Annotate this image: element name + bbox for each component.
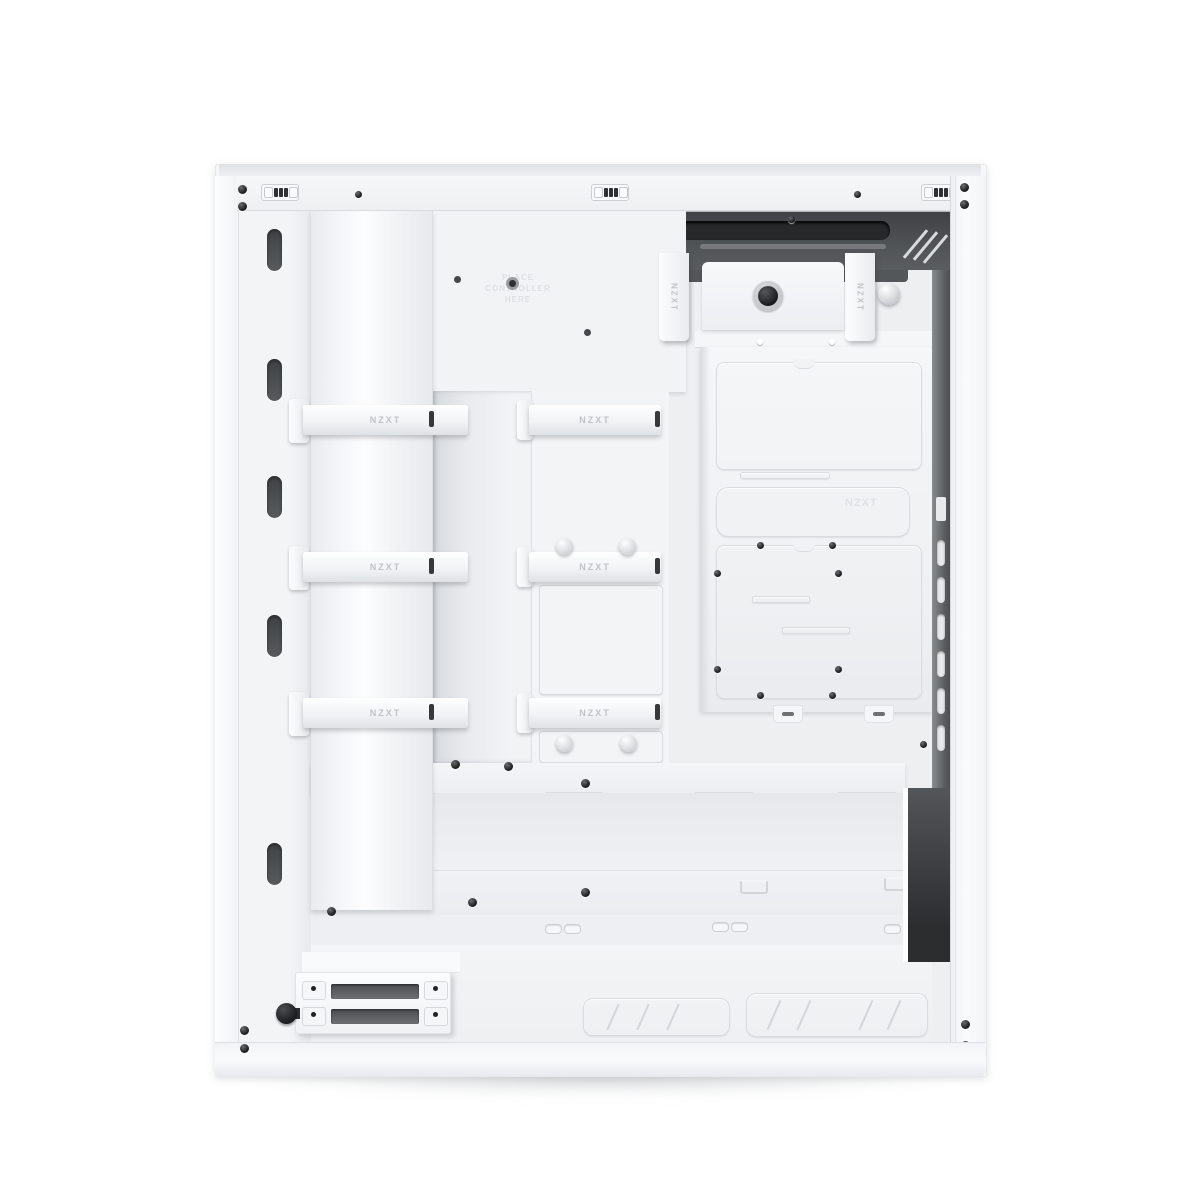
floor-rib bbox=[859, 1000, 874, 1030]
opening-bright-edge bbox=[903, 788, 908, 962]
plate-screw bbox=[714, 570, 721, 577]
right-outer-rail bbox=[950, 176, 986, 1042]
oval-vent bbox=[712, 922, 729, 932]
channel-ledge-right bbox=[700, 244, 886, 249]
channel-vent-stripe bbox=[923, 234, 948, 264]
shelf-screw bbox=[504, 762, 513, 771]
strap-slot bbox=[655, 558, 660, 574]
shelf-screw bbox=[581, 779, 590, 788]
plate-hook-tab bbox=[773, 705, 803, 723]
shelf-screw bbox=[451, 760, 460, 769]
hook-tab-slot bbox=[782, 712, 794, 716]
cable-strap: NZXT bbox=[529, 405, 661, 435]
floor-rib bbox=[666, 1004, 679, 1030]
drive-tray-outline bbox=[716, 362, 922, 470]
strap-slot bbox=[429, 704, 434, 720]
pill-recess bbox=[716, 487, 910, 537]
cage-slot bbox=[331, 984, 419, 999]
vent-slot bbox=[614, 188, 618, 197]
rear-screw bbox=[920, 741, 927, 748]
vent-slot bbox=[609, 188, 613, 197]
plate-screw bbox=[835, 666, 842, 673]
top-vent-group bbox=[591, 184, 629, 201]
strap-slot bbox=[655, 704, 660, 720]
oval-vent bbox=[731, 922, 748, 932]
floor-rib bbox=[767, 1000, 782, 1030]
vent-slot bbox=[939, 188, 943, 197]
hanging-cable-strap: NZXT bbox=[659, 253, 689, 341]
vent-end-cap bbox=[924, 187, 933, 198]
plate-hole bbox=[454, 276, 461, 283]
vent-slot bbox=[604, 188, 608, 197]
vent-end-cap bbox=[594, 187, 603, 198]
controller-emboss-text: PLACE CONTROLLER HERE bbox=[448, 272, 588, 305]
front-frame-cutout bbox=[267, 843, 282, 885]
plate-screw bbox=[829, 692, 836, 699]
cage-slot bbox=[331, 1009, 419, 1024]
cable-strap: NZXT bbox=[303, 405, 468, 435]
front-frame-cutout bbox=[267, 615, 282, 657]
corner-screw bbox=[240, 1026, 249, 1035]
rear-vent-slot bbox=[937, 540, 945, 566]
cage-screw-tab bbox=[424, 1007, 448, 1026]
shelf-screw bbox=[581, 888, 590, 897]
top-vent-group bbox=[261, 184, 299, 201]
rail-seam-line bbox=[955, 176, 956, 1042]
product-photo: PLACE CONTROLLER HERE NZXT bbox=[0, 0, 1200, 1200]
dash-emboss bbox=[752, 596, 810, 603]
corner-screw bbox=[238, 185, 247, 194]
plate-screw bbox=[757, 542, 764, 549]
dash-emboss bbox=[782, 627, 850, 634]
plate-screw bbox=[714, 666, 721, 673]
vent-end-cap bbox=[264, 187, 273, 198]
shelf-screw bbox=[468, 898, 477, 907]
standoff-bump bbox=[556, 538, 573, 555]
top-bar-screw bbox=[355, 191, 362, 198]
vent-end-cap bbox=[619, 187, 628, 198]
drive-cage-top bbox=[302, 952, 460, 973]
cage-tab-hole bbox=[311, 986, 316, 991]
plate-hole bbox=[584, 329, 591, 336]
bottom-frame bbox=[215, 1042, 985, 1076]
strap-slot bbox=[429, 558, 434, 574]
cage-screw-tab bbox=[302, 1007, 326, 1026]
plate-grommet-hole-center bbox=[509, 280, 516, 287]
cable-strap: NZXT bbox=[303, 698, 468, 728]
strap-brand-label: NZXT bbox=[579, 415, 611, 425]
cable-strap: NZXT bbox=[529, 552, 661, 582]
floor-rib bbox=[887, 1000, 902, 1030]
oval-vent bbox=[564, 924, 581, 934]
mid-column-frame bbox=[539, 585, 663, 695]
step-screw-hole bbox=[829, 339, 835, 345]
cable-strap: NZXT bbox=[529, 698, 661, 728]
plate-screw bbox=[829, 542, 836, 549]
cage-screw-tab bbox=[302, 981, 326, 1000]
strap-slot bbox=[655, 411, 660, 427]
drive-tray-outline bbox=[716, 545, 922, 699]
strap-brand-label: NZXT bbox=[370, 562, 402, 572]
strap-brand-label: NZXT bbox=[579, 708, 611, 718]
vent-slot bbox=[279, 188, 283, 197]
plate-screw bbox=[757, 692, 764, 699]
rear-vent-slot bbox=[937, 725, 945, 751]
hook-tab-slot bbox=[873, 712, 885, 716]
thumbscrew-knob bbox=[276, 1003, 297, 1024]
strap-brand-label: NZXT bbox=[670, 283, 679, 312]
standoff-bump bbox=[556, 735, 573, 752]
corner-screw bbox=[960, 200, 969, 209]
vent-strip bbox=[311, 915, 932, 945]
drive-cage bbox=[295, 972, 451, 1034]
corner-screw bbox=[960, 183, 969, 192]
bar-screw bbox=[327, 907, 336, 916]
corner-screw bbox=[240, 1044, 249, 1053]
bracket-grommet bbox=[753, 281, 783, 311]
tray-step bbox=[695, 331, 937, 348]
corner-screw bbox=[238, 202, 247, 211]
thumb-stud bbox=[878, 283, 900, 305]
plate-fold-edge bbox=[700, 347, 710, 712]
floor-rib bbox=[606, 1004, 619, 1030]
floor-rib bbox=[636, 1004, 649, 1030]
floor-rib bbox=[797, 1000, 812, 1030]
front-frame-cutout bbox=[267, 476, 282, 518]
standoff-bump bbox=[619, 538, 636, 555]
shelf-hook-cutout bbox=[740, 880, 768, 894]
rear-hook-cutout bbox=[936, 497, 946, 521]
front-frame-cutout bbox=[267, 359, 282, 401]
left-outer-wall bbox=[215, 176, 239, 1042]
cage-screw-tab bbox=[424, 981, 448, 1000]
rear-vent-slot bbox=[937, 651, 945, 677]
strap-brand-label: NZXT bbox=[579, 562, 611, 572]
rear-psu-opening bbox=[903, 788, 951, 962]
channel-screw bbox=[788, 216, 795, 223]
drive-mount-plate: NZXT bbox=[700, 347, 932, 712]
oval-vent bbox=[884, 924, 901, 934]
floor-vent-tray bbox=[583, 998, 730, 1036]
hanging-cable-strap: NZXT bbox=[845, 253, 875, 341]
plate-screw bbox=[835, 570, 842, 577]
strap-slot bbox=[429, 411, 434, 427]
rear-vent-slot bbox=[937, 688, 945, 714]
floor-vent-tray bbox=[746, 993, 928, 1037]
corner-screw bbox=[961, 1020, 970, 1029]
front-frame-cutout bbox=[267, 229, 282, 271]
cage-tab-hole bbox=[311, 1012, 316, 1017]
vent-slot bbox=[934, 188, 938, 197]
plate-hook-tab bbox=[864, 705, 894, 723]
grommet-screw bbox=[758, 286, 778, 306]
vent-end-cap bbox=[289, 187, 298, 198]
standoff-bump bbox=[620, 735, 637, 752]
cable-strap: NZXT bbox=[303, 552, 468, 582]
strap-brand-label: NZXT bbox=[370, 708, 402, 718]
latch-emboss bbox=[740, 472, 830, 479]
rear-vent-slot bbox=[937, 577, 945, 603]
controller-plate: PLACE CONTROLLER HERE bbox=[430, 211, 686, 392]
panel-emboss-brand: NZXT bbox=[845, 497, 915, 509]
rear-vent-slot bbox=[937, 614, 945, 640]
strap-brand-label: NZXT bbox=[856, 283, 865, 312]
strap-brand-label: NZXT bbox=[370, 415, 402, 425]
top-bar-screw bbox=[854, 191, 861, 198]
oval-vent bbox=[545, 924, 562, 934]
controller-emboss-line: HERE bbox=[448, 294, 588, 305]
vent-slot bbox=[944, 188, 948, 197]
cage-tab-hole bbox=[433, 986, 438, 991]
step-screw-hole bbox=[757, 339, 763, 345]
vent-slot bbox=[274, 188, 278, 197]
vent-slot bbox=[284, 188, 288, 197]
cage-tab-hole bbox=[433, 1012, 438, 1017]
